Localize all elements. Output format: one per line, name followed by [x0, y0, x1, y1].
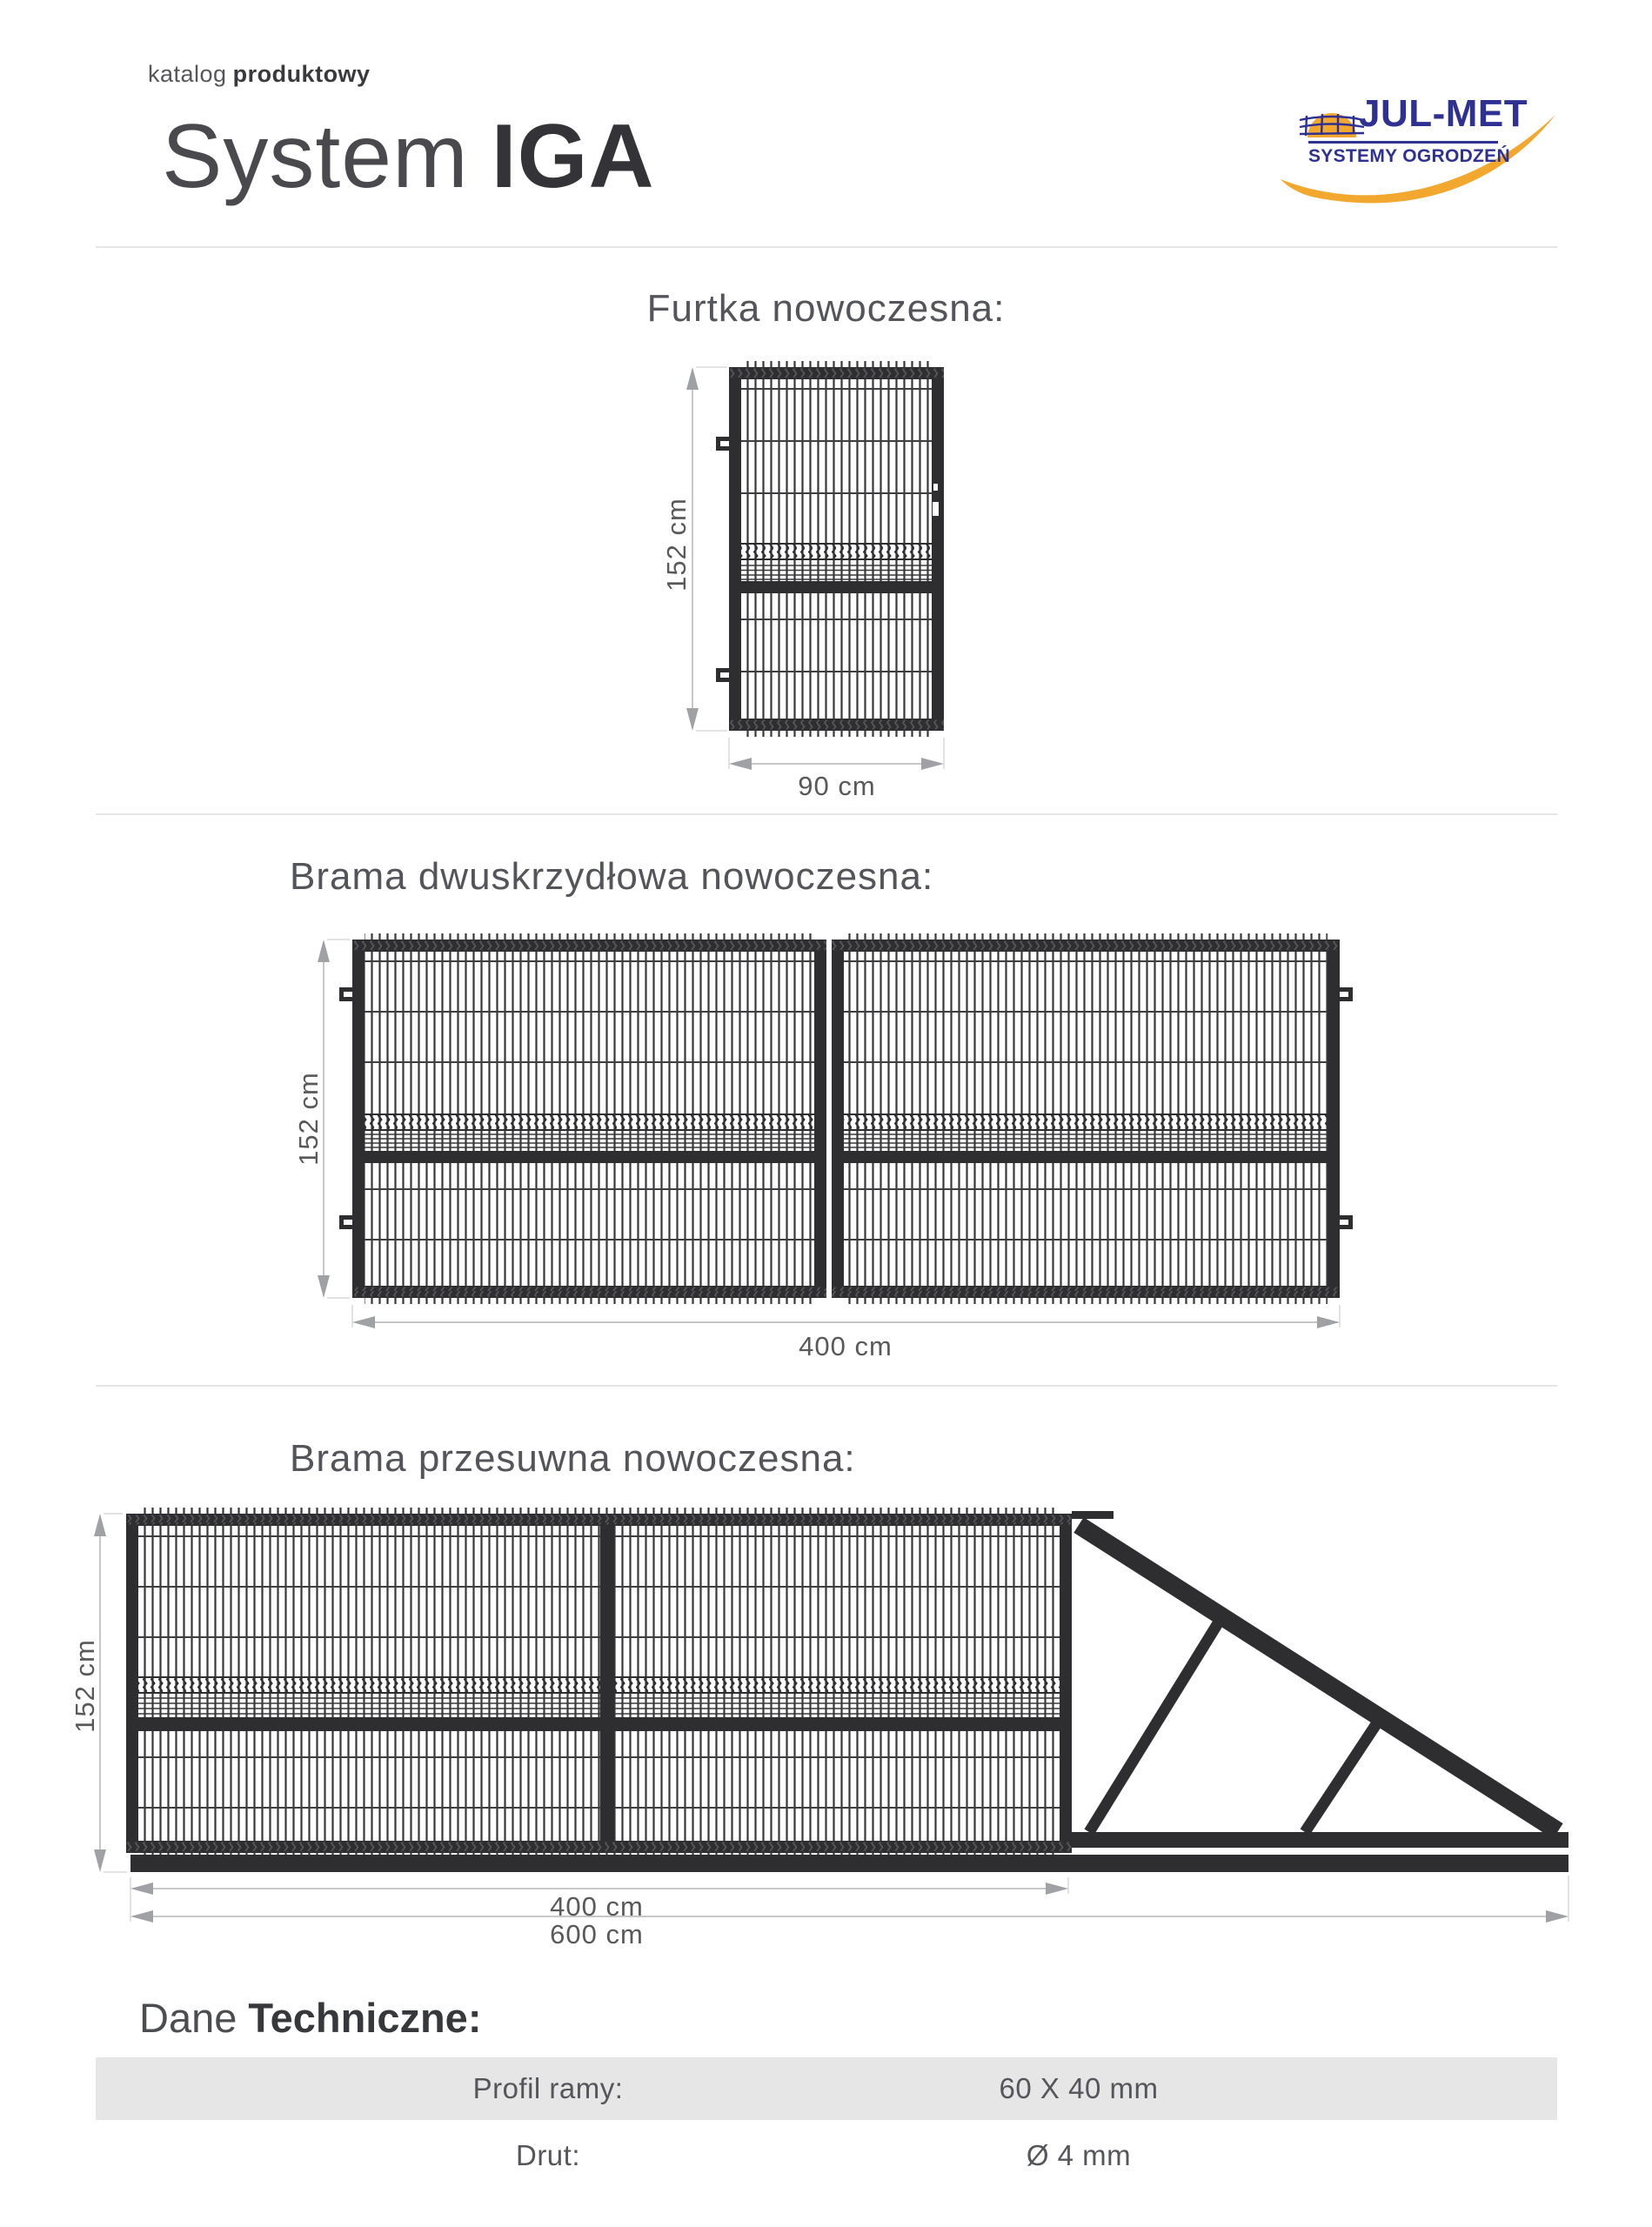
- furtka-width-label: 90 cm: [798, 771, 875, 801]
- technical-drawings: 152 cm 90 cm: [0, 0, 1652, 2227]
- table-row-label: Drut:: [383, 2139, 713, 2172]
- przesuwna-guide-rail: [130, 1855, 1568, 1872]
- table-row: Profil ramy: 60 X 40 mm: [96, 2057, 1557, 2120]
- table-row-label: Profil ramy:: [383, 2072, 713, 2105]
- furtka-height-label: 152 cm: [661, 498, 692, 592]
- table-row-value: 60 X 40 mm: [913, 2072, 1244, 2105]
- dwuskrzydlowa-height-label: 152 cm: [293, 1072, 324, 1166]
- furtka-drawing: [716, 361, 944, 737]
- brama-przesuwna-drawing: [126, 1508, 1568, 1872]
- table-row: Drut: Ø 4 mm: [96, 2124, 1557, 2187]
- tech-heading-light: Dane: [139, 1995, 237, 2041]
- furtka-hinges: [716, 437, 729, 682]
- catalog-page: katalogproduktowy SystemIGA JUL-MET SYST…: [0, 0, 1652, 2227]
- przesuwna-height-label: 152 cm: [70, 1639, 100, 1733]
- dwuskrzydlowa-width-label: 400 cm: [799, 1331, 893, 1361]
- tech-heading-bold: Techniczne:: [248, 1995, 481, 2041]
- przesuwna-total-width-label: 600 cm: [550, 1919, 644, 1949]
- furtka-crossbar: [741, 581, 932, 593]
- przesuwna-panel-width-label: 400 cm: [550, 1891, 644, 1922]
- przesuwna-counterbalance: [1072, 1511, 1568, 1848]
- table-row-value: Ø 4 mm: [913, 2139, 1244, 2172]
- brama-dwuskrzydlowa-drawing: [339, 933, 1353, 1304]
- tech-heading: DaneTechniczne:: [139, 1994, 481, 2042]
